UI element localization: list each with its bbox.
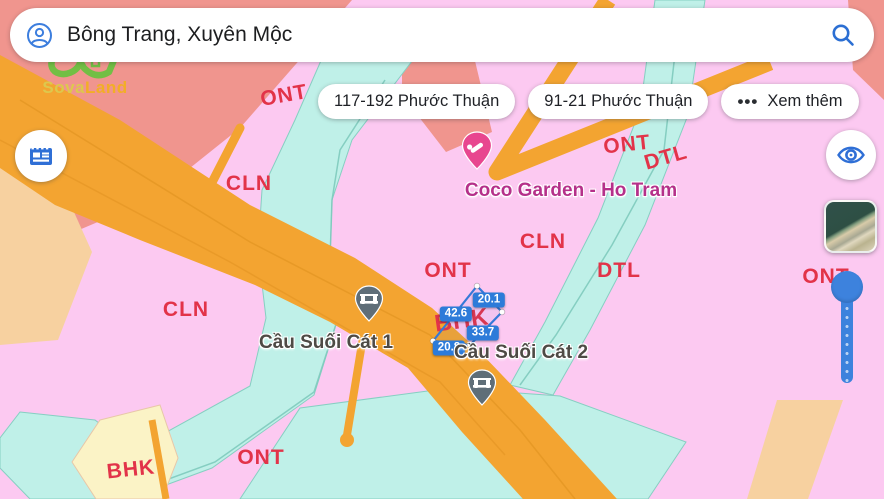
zone-label: DTL xyxy=(597,259,641,283)
eye-icon xyxy=(836,140,866,170)
chip-row: 117-192 Phước Thuận 91-21 Phước Thuận ••… xyxy=(318,84,859,119)
search-icon[interactable] xyxy=(830,22,856,48)
coco-garden-pin[interactable] xyxy=(461,130,493,170)
zone-label: ONT xyxy=(424,259,471,283)
bridge-pin-1[interactable] xyxy=(354,284,384,322)
zone-label: CLN xyxy=(226,172,272,196)
newspaper-icon xyxy=(27,142,55,170)
zoom-slider-track[interactable] xyxy=(841,289,853,383)
map-screen: ONTCLNONTDTLCLNONTDTLONTCLNBHKBHKONT 20.… xyxy=(0,0,884,499)
zoom-slider-knob[interactable] xyxy=(831,271,863,303)
road-spur-end xyxy=(340,433,354,447)
ellipsis-icon: ••• xyxy=(737,92,758,112)
basemap-thumbnail[interactable] xyxy=(824,200,877,253)
edge-length-badge: 42.6 xyxy=(440,307,472,322)
edge-length-badge: 33.7 xyxy=(467,326,499,341)
zoom-slider[interactable] xyxy=(831,271,863,386)
zone-label: CLN xyxy=(163,298,209,322)
search-input[interactable]: Bông Trang, Xuyên Mộc xyxy=(67,23,830,47)
news-button[interactable] xyxy=(15,130,67,182)
zone-label: ONT xyxy=(237,446,284,470)
account-icon[interactable] xyxy=(26,22,53,49)
zone-label: CLN xyxy=(520,230,566,254)
search-bar[interactable]: Bông Trang, Xuyên Mộc xyxy=(10,8,874,62)
suggestion-chip[interactable]: ••• Xem thêm xyxy=(721,84,858,119)
suggestion-chip[interactable]: 91-21 Phước Thuận xyxy=(528,84,708,119)
sovaland-logo-text: SovaLand xyxy=(42,78,128,98)
zone-label: BHK xyxy=(106,456,157,485)
visibility-button[interactable] xyxy=(826,130,876,180)
place-label: Cầu Suối Cát 1 xyxy=(259,332,393,354)
chip-label: 117-192 Phước Thuận xyxy=(334,92,499,111)
suggestion-chip[interactable]: 117-192 Phước Thuận xyxy=(318,84,515,119)
place-label: Cầu Suối Cát 2 xyxy=(454,342,588,364)
place-label: Coco Garden - Ho Tram xyxy=(465,180,677,202)
zoning-map-canvas[interactable] xyxy=(0,0,884,499)
chip-label: Xem thêm xyxy=(767,92,842,111)
bridge-pin-2[interactable] xyxy=(467,368,497,406)
edge-length-badge: 20.1 xyxy=(473,293,505,308)
chip-label: 91-21 Phước Thuận xyxy=(544,92,692,111)
